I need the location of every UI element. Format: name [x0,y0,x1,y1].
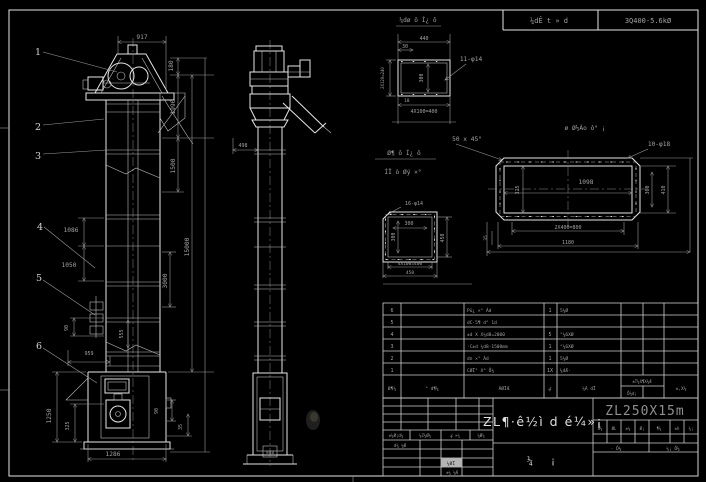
bom-name: ·C±d ¼d8-1500mm [467,344,508,350]
dim-1250: 1250 [46,408,53,423]
dim-498: 498 [238,143,247,149]
bom-material: 5¼Ø [560,307,568,314]
bom-name: dС·5¶ d° 1d [467,320,497,326]
balloon-1: 1 [35,47,41,58]
cad-viewport: ¼dÊ t » d 3Q400-5.6kØ 1 2 3 4 5 6 917 [0,0,706,482]
bom-qty: 1 [548,308,551,314]
bom-header-notes: ±,X¼ [676,386,687,392]
bom-material: ¼4Æ· [560,368,571,374]
doc-label-right: ¡ [550,456,556,467]
dim-1180: 1180 [562,240,574,246]
bom-qty: 5 [548,332,551,338]
bom-qty: 1 [548,344,551,350]
bom-qty: 1X [547,368,553,374]
bom-seq: 1 [390,368,393,374]
balloon-6: 6 [36,341,42,352]
tb-left-grey: ¼ØÏ [447,460,455,467]
drawing-name: ZL¶·ê½ì d é¼»¡ [483,414,603,429]
dim-90-left: 90 [64,325,70,331]
tb-small-cell: ±h [675,426,680,431]
balloon-4: 4 [37,222,43,233]
bom-qty: 1 [548,356,551,362]
bom-name: dп ×° Àd [467,355,489,362]
dim-410: 410 [661,185,667,194]
dim-1086: 1086 [64,227,79,234]
dim-2x120: 2X120=240 [380,67,385,89]
part-c-title: ø Ø½Ào ô° ¡ [565,123,606,132]
bom-header-code: ° d¶¼ [425,386,439,392]
balloon-5: 5 [36,273,42,284]
dim-30: 30 [402,44,408,50]
dim-4x100-b: 4X100=400 [398,261,423,267]
balloon-3: 3 [35,151,41,162]
dim-325: 325 [65,421,71,430]
tb-small-cell: ØL [612,426,617,431]
dim-917: 917 [136,34,147,41]
note-line-2: ÍÏ ò Øý ×° [384,167,421,176]
bom-material: °¼6XØ [560,343,574,350]
dim-300-v: 300 [391,232,397,241]
dim-1990: 1990 [170,99,177,114]
cad-canvas: ¼dÊ t » d 3Q400-5.6kØ 1 2 3 4 5 6 917 [0,0,706,482]
dim-440: 440 [419,36,428,42]
bom-seq: 6 [390,308,393,314]
bom-name: CØÏ° X° Õ¼ [467,367,494,374]
dim-325-c: 325 [515,185,521,194]
note-line-1: Ø¶ ô Í¿ ô [387,148,421,157]
dim-2x400: 2X400=800 [554,225,581,231]
dim-3000: 3000 [162,273,169,288]
dim-180: 180 [168,60,175,71]
bom-seq: 4 [390,332,393,338]
label-10-holes: 10-φ18 [648,141,671,148]
dim-35-c: 35 [483,235,489,241]
dim-450-b: 450 [406,270,414,276]
dim-555: 555 [119,329,125,338]
doc-label-left: ¼ [527,455,533,467]
dim-300-inner: 300 [419,73,425,82]
bom-header-material: ¼Ã dÏ [582,385,596,392]
dim-450-r: 450 [440,233,446,242]
header-right-cell: 3Q400-5.6kØ [625,17,672,25]
dim-959: 959 [84,351,93,357]
dim-948: 948 [266,450,274,456]
dim-90-right: 90 [154,408,160,414]
balloon-2: 2 [35,122,41,133]
bom-material: °¼6XØ [560,331,574,338]
bom-header-qty: ؼ [549,386,552,392]
tb-sig-right: ¼¡ Õ¼ [666,445,680,452]
dim-1500: 1500 [170,158,177,173]
dim-35: 35 [178,424,184,430]
dim-360: 360 [645,185,651,194]
header-left-cell: ¼dÊ t » d [530,16,568,25]
bom-header-seq: Ø¶¼ [388,385,396,392]
bom-seq: 3 [390,344,393,350]
bom-material: 5¼Ø [560,355,568,362]
bom-name: Pü¿ ×° Àd [467,307,492,314]
bom-seq: 5 [390,320,393,326]
dim-300-h: 300 [404,221,413,227]
dim-10: 10 [404,98,410,104]
chamfer-note: 50 x 45° [452,135,482,143]
detail-a-title: ¼dø ô Í¿ ô [399,15,437,24]
dim-1098: 1098 [579,179,594,186]
dim-1050: 1050 [62,262,77,269]
bom-seq: 2 [390,356,393,362]
tb-sig-left: · Õ¼ [611,445,622,452]
model-number: ZL250X15m [605,404,684,419]
dim-4x100: 4X100=400 [410,109,437,115]
bom-header-name: ÃØÏÆ [499,385,510,392]
bom-name: ±d X X¼d8=2000 [467,332,505,338]
dim-15000: 15000 [184,237,191,256]
label-11-holes: 11-φ14 [460,56,483,63]
tb-small-cell: Ø¡ [640,426,645,431]
dim-1286: 1286 [106,451,121,458]
label-16-holes: 16-φ14 [405,201,423,207]
